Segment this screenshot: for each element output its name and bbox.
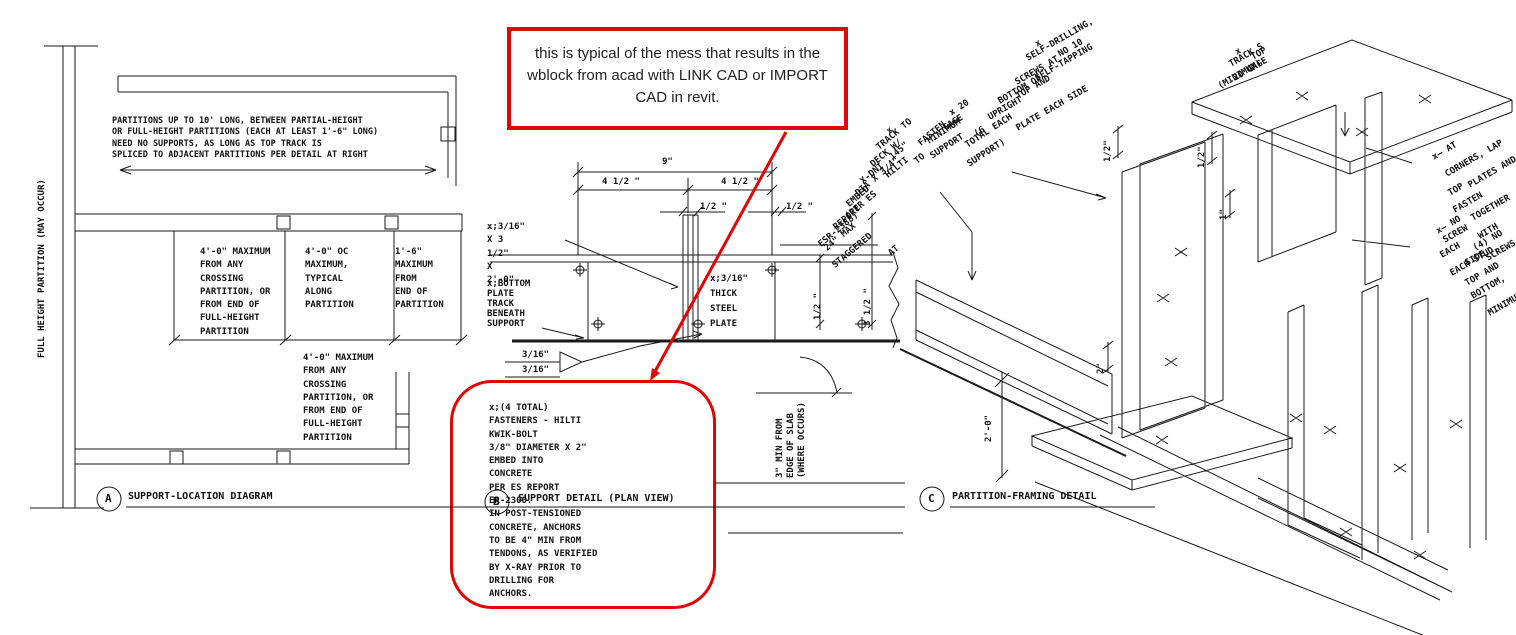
note-end-of-partition: 1'-6" MAXIMUM FROM END OF PARTITION — [395, 246, 444, 312]
red-arrow — [650, 132, 786, 381]
cad-sheet: this is typical of the mess that results… — [0, 0, 1516, 635]
fastener-note-line: TO — [912, 151, 929, 168]
detail-bubble-c: C — [928, 492, 935, 505]
dim-half-b: 1/2" — [1196, 146, 1209, 168]
anchor-callout-note: x;(4 TOTAL) FASTENERS - HILTI KWIK-BOLT … — [489, 402, 597, 601]
dim-9in: 9" — [662, 156, 673, 169]
steel-plate-note: x;3/16" THICK STEEL PLATE — [710, 272, 748, 332]
top-callout-box: this is typical of the mess that results… — [507, 27, 848, 130]
corner-note-line: EACH — [1438, 240, 1463, 262]
dim-2in: 2" — [1095, 363, 1108, 374]
detail-bubble-a: A — [105, 492, 112, 505]
dim-halfin-left: 1/2 " — [700, 201, 727, 214]
plate-size-note: x;3/16" X 3 1/2" X 2'-0" — [487, 221, 525, 287]
weld-size-bottom: 3/16" — [522, 364, 549, 377]
dim-side-3half: 3 1/2 " — [862, 288, 875, 326]
dim-2ft: 2'-0" — [983, 415, 996, 442]
corner-note-line: x— AT — [1430, 139, 1460, 164]
dim-4half-left: 4 1/2 " — [602, 176, 640, 189]
note-crossing-partition: 4'-0" MAXIMUM FROM ANY CROSSING PARTITIO… — [200, 246, 270, 339]
dim-halfin-right: 1/2 " — [786, 201, 813, 214]
bottom-track-note: x;BOTTOM PLATE TRACK BENEATH SUPPORT — [487, 279, 530, 329]
dim-half-a: 1/2" — [1102, 140, 1115, 162]
fastener-note-line: AT — [886, 243, 903, 260]
dim-1in: 1" — [1218, 209, 1231, 220]
top-callout-text: this is typical of the mess that results… — [511, 43, 844, 109]
note-oc-maximum: 4'-0" OC MAXIMUM, TYPICAL ALONG PARTITIO… — [305, 246, 354, 312]
title-support-location-diagram: SUPPORT-LOCATION DIAGRAM — [128, 490, 273, 503]
partition-rule-note: PARTITIONS UP TO 10' LONG, BETWEEN PARTI… — [112, 116, 378, 162]
weld-size-top: 3/16" — [522, 349, 549, 362]
title-partition-framing-detail: PARTITION-FRAMING DETAIL — [952, 490, 1097, 503]
note-crossing-partition-2: 4'-0" MAXIMUM FROM ANY CROSSING PARTITIO… — [303, 352, 373, 445]
full-height-partition-label: FULL HEIGHT PARTITION (MAY OCCUR) — [36, 179, 49, 358]
dim-side-half: 1/2 " — [812, 293, 825, 320]
slab-edge-note: 3" MIN FROM EDGE OF SLAB (WHERE OCCURS) — [775, 402, 808, 478]
dim-4half-right: 4 1/2 " — [721, 176, 759, 189]
